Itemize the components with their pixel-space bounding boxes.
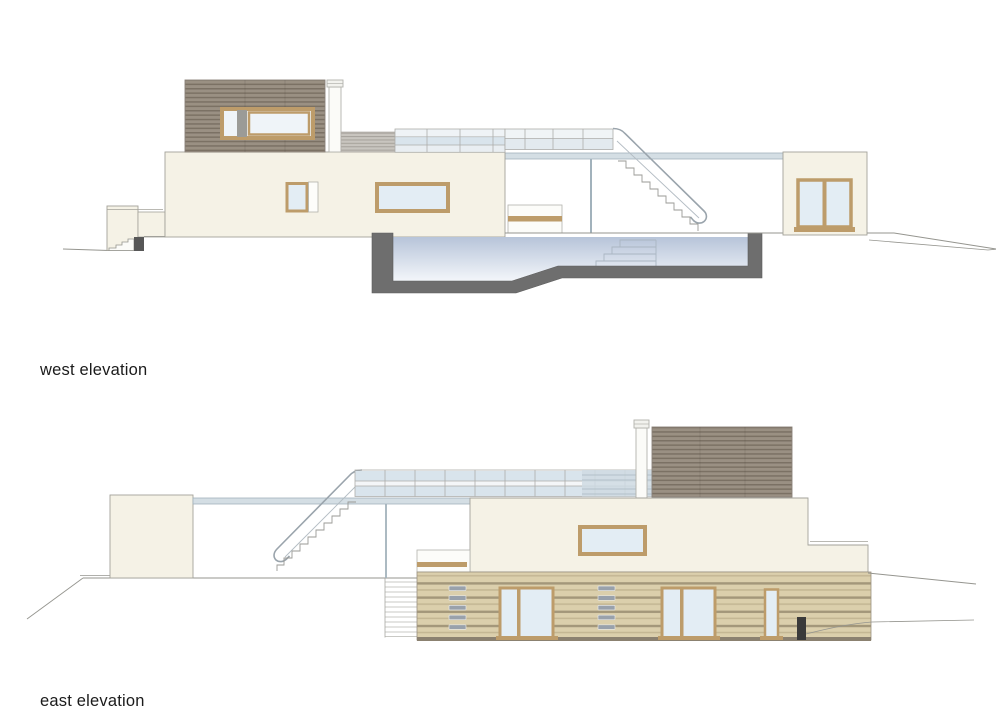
east-slope-line [27,578,83,619]
vent-slot [449,605,466,610]
east-stair-parapet [417,550,470,572]
west-chimney [329,87,341,152]
railing-band [505,129,613,139]
west-elevation-label: west elevation [39,361,147,379]
door-glass [765,590,778,638]
west-ramp-bottom-line [869,240,996,250]
side-stair-treads [385,582,417,637]
east-elevation-label: east elevation [40,692,145,710]
railing-band [395,137,505,145]
stair-treads [618,161,698,231]
west-box-window-mullion [237,110,247,137]
west-main-wall [165,152,505,237]
west-wide-window [377,184,448,211]
west-entry-side-wall [138,212,165,237]
west-stair [613,129,706,232]
vent-slot [449,596,466,601]
east-stair [274,470,362,571]
stair-handrail [613,129,706,224]
door-glass [500,588,553,638]
railing-band [395,145,505,152]
west-entry-dark-block [134,237,144,251]
door-sill [760,636,783,640]
east-terrain-upper-line [868,573,976,584]
west-roof-railing [395,129,505,152]
stair-handrail-inner [617,141,699,218]
east-chimney [636,428,647,498]
vent-slot [598,596,615,601]
west-small-window-leaf [309,182,319,212]
railing-band [395,129,505,137]
west-sliding-door-sill [794,227,855,232]
door-mullion [680,588,684,638]
west-box-window-inner-frame [249,113,309,135]
stair-handrail [274,470,362,562]
vent-slot [598,625,615,630]
east-left-box [110,495,193,578]
west-ramp-top-line [867,233,996,249]
west-roof-louver-screen [341,132,395,152]
vent-slot [598,615,615,620]
west-pool-section [372,233,762,293]
east-main-wall [470,498,868,572]
east-side-stairs [385,578,417,638]
east-roof-beam [193,498,470,504]
west-elevation-drawing [63,80,996,293]
west-ground-line-left [63,249,109,251]
west-sliding-door-mullion [823,180,827,227]
door-sill [658,636,720,640]
door-sill [496,636,558,640]
east-dark-flue [797,617,806,640]
vent-slot [449,615,466,620]
west-terrace-railing [505,129,613,150]
west-small-window [287,184,307,212]
east-roof-railing [355,470,652,497]
vent-slot [449,625,466,630]
drawing-sheet: west elevation east elevation [0,0,1000,727]
east-wood-box [652,427,792,497]
east-stair-parapet-band [417,562,467,567]
east-elevation-drawing [27,420,976,641]
vent-slot [598,586,615,591]
east-door-1 [496,588,558,640]
vent-slot [449,586,466,591]
door-mullion [517,588,521,638]
east-upper-window [580,527,645,554]
east-door-2 [658,588,720,640]
stair-handrail-inner [285,484,358,557]
west-counter-band [508,216,562,222]
elevations-svg: west elevation east elevation [0,0,1000,727]
vent-slot [598,605,615,610]
door-glass [662,588,715,638]
railing-band [505,139,613,150]
